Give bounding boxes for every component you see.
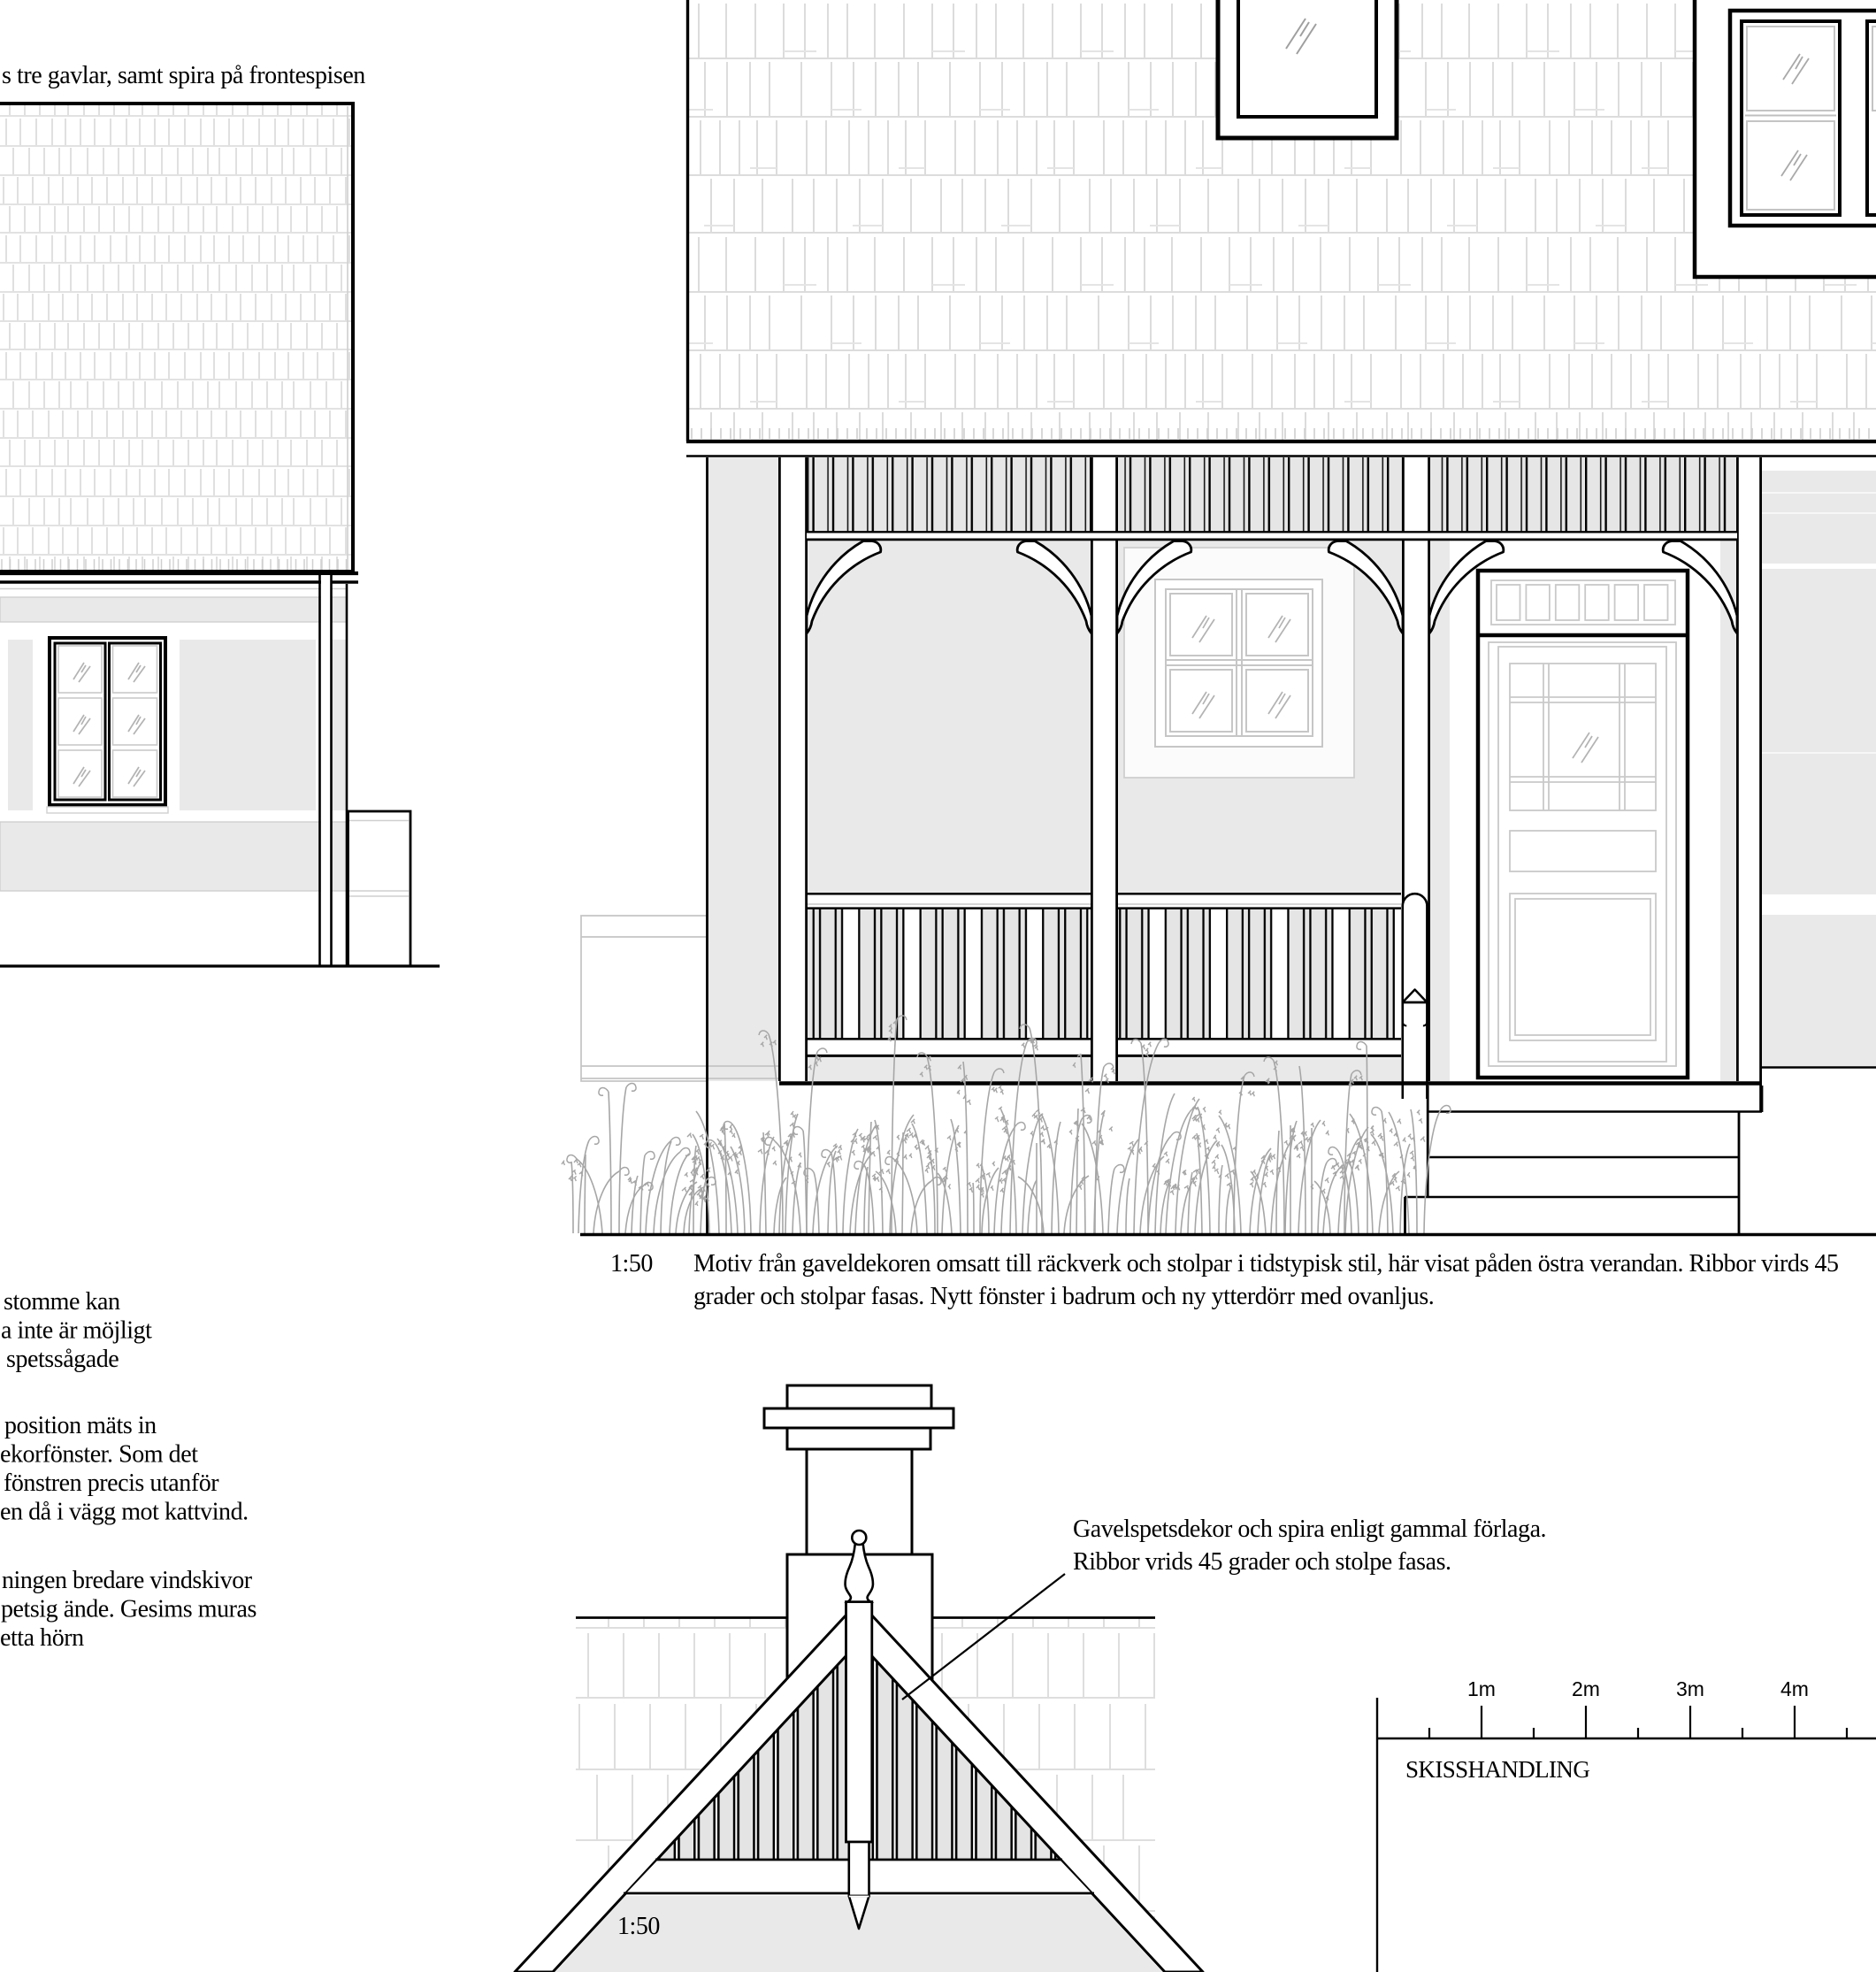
svg-text:4m: 4m: [1780, 1677, 1809, 1700]
svg-text:2m: 2m: [1572, 1677, 1600, 1700]
svg-text:position mäts in: position mäts in: [4, 1412, 157, 1439]
svg-text:Motiv från gaveldekoren omsatt: Motiv från gaveldekoren omsatt till räck…: [693, 1250, 1839, 1278]
svg-text:3m: 3m: [1676, 1677, 1704, 1700]
svg-text:spetssågade: spetssågade: [6, 1346, 119, 1373]
svg-text:a inte är möjligt: a inte är möjligt: [1, 1317, 152, 1345]
svg-text:SKISSHANDLING: SKISSHANDLING: [1405, 1756, 1589, 1783]
svg-text:fönstren precis utanför: fönstren precis utanför: [4, 1469, 219, 1497]
svg-text:s tre gavlar, samt spira på fr: s tre gavlar, samt spira på frontespisen: [2, 62, 365, 89]
svg-text:ekorfönster. Som det: ekorfönster. Som det: [0, 1441, 198, 1469]
svg-text:etta hörn: etta hörn: [0, 1624, 84, 1652]
svg-text:1:50: 1:50: [610, 1250, 653, 1278]
svg-text:Ribbor vrids 45 grader och sto: Ribbor vrids 45 grader och stolpe fasas.: [1073, 1548, 1451, 1576]
svg-text:Gavelspetsdekor och spira enli: Gavelspetsdekor och spira enligt gammal …: [1073, 1515, 1546, 1543]
svg-text:petsig ände. Gesims muras: petsig ände. Gesims muras: [1, 1596, 257, 1623]
svg-text:grader och stolpar fasas. Nytt: grader och stolpar fasas. Nytt fönster i…: [693, 1283, 1434, 1310]
svg-text:1:50: 1:50: [617, 1913, 660, 1940]
svg-text:1m: 1m: [1467, 1677, 1496, 1700]
svg-text:stomme kan: stomme kan: [4, 1288, 120, 1316]
svg-text:ningen bredare vindskivor: ningen bredare vindskivor: [2, 1567, 253, 1594]
svg-text:en då i vägg mot kattvind.: en då i vägg mot kattvind.: [0, 1499, 249, 1526]
